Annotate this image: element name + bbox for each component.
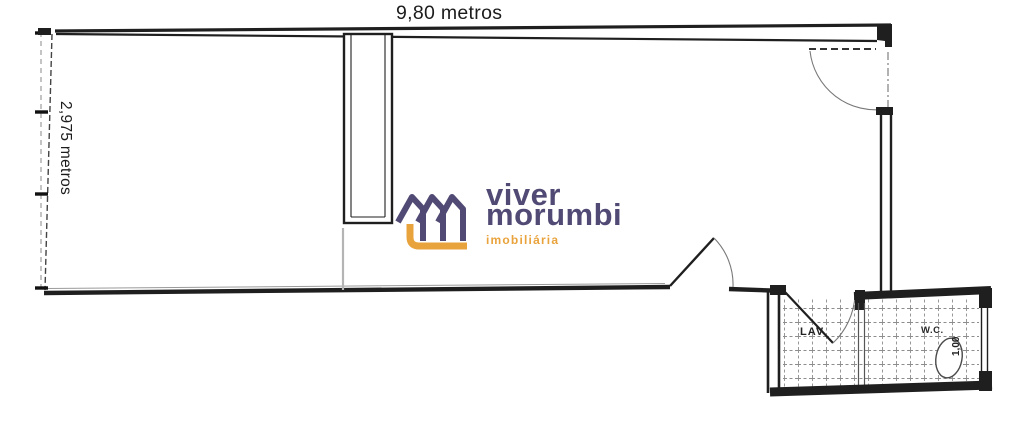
right-wall (881, 112, 891, 296)
brand-logo: viver morumbi imobiliária (395, 184, 655, 254)
dimension-line-left (35, 28, 52, 291)
entry-door (809, 49, 893, 115)
top-wall (55, 24, 892, 47)
dimension-depth-label: 2,975 metros (56, 101, 74, 195)
dimension-width-label: 9,80 metros (396, 2, 502, 25)
wc-window (979, 288, 992, 391)
annex-left-wall (768, 292, 779, 393)
house-logo-icon (395, 186, 473, 252)
partition-wall (343, 34, 392, 290)
interior-door (670, 238, 733, 287)
brand-tagline: imobiliária (486, 233, 622, 247)
brand-name: viver morumbi imobiliária (486, 185, 622, 247)
room-label-wc: W.C. (921, 325, 944, 336)
brand-name-line2: morumbi (486, 205, 622, 225)
room-label-laundry: LAV (800, 326, 824, 338)
dimension-wc-label: 1,00 (951, 337, 962, 356)
bottom-wall (44, 284, 786, 294)
floor-plan-canvas: 9,80 metros 2,975 metros 1,00 LAV W.C. v… (0, 0, 1024, 434)
